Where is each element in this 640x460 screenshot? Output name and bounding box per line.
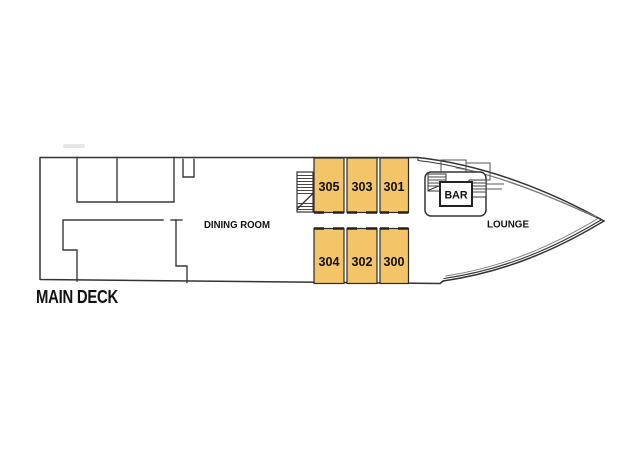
cabin-304[interactable]: 304: [314, 229, 344, 284]
deck-plan-page: 305 303 301 304 302 300: [0, 0, 640, 460]
dining-room-label: DINING ROOM: [204, 219, 270, 231]
cabin-300-number: 300: [384, 254, 405, 269]
cabin-304-number: 304: [319, 254, 341, 269]
stern-room-walls: [63, 158, 194, 283]
cabin-305[interactable]: 305: [314, 158, 344, 213]
funnel-mark: [63, 144, 85, 148]
cabin-300[interactable]: 300: [380, 229, 409, 284]
cabin-301-number: 301: [384, 179, 405, 194]
bar-label: BAR: [445, 190, 468, 202]
cabin-301[interactable]: 301: [380, 158, 409, 213]
cabin-303[interactable]: 303: [347, 158, 377, 213]
deck-plan: 305 303 301 304 302 300: [0, 0, 640, 460]
dining-door-notch: [183, 160, 194, 178]
lounge-label: LOUNGE: [487, 219, 529, 231]
cabin-row-top: 305 303 301: [314, 158, 409, 213]
deck-title: MAIN DECK: [36, 287, 118, 307]
cabin-303-number: 303: [352, 179, 373, 194]
cabin-row-bottom: 304 302 300: [314, 229, 409, 284]
cabin-302-number: 302: [352, 254, 373, 269]
stern-lower-room-left: [63, 220, 163, 281]
stern-lower-room-right: [176, 220, 187, 283]
cabin-302[interactable]: 302: [347, 229, 377, 284]
stern-top-room-outline: [77, 158, 174, 203]
bar-railing-lines: [486, 184, 504, 189]
stairs-icon: [297, 172, 313, 212]
cabin-305-number: 305: [319, 179, 340, 194]
